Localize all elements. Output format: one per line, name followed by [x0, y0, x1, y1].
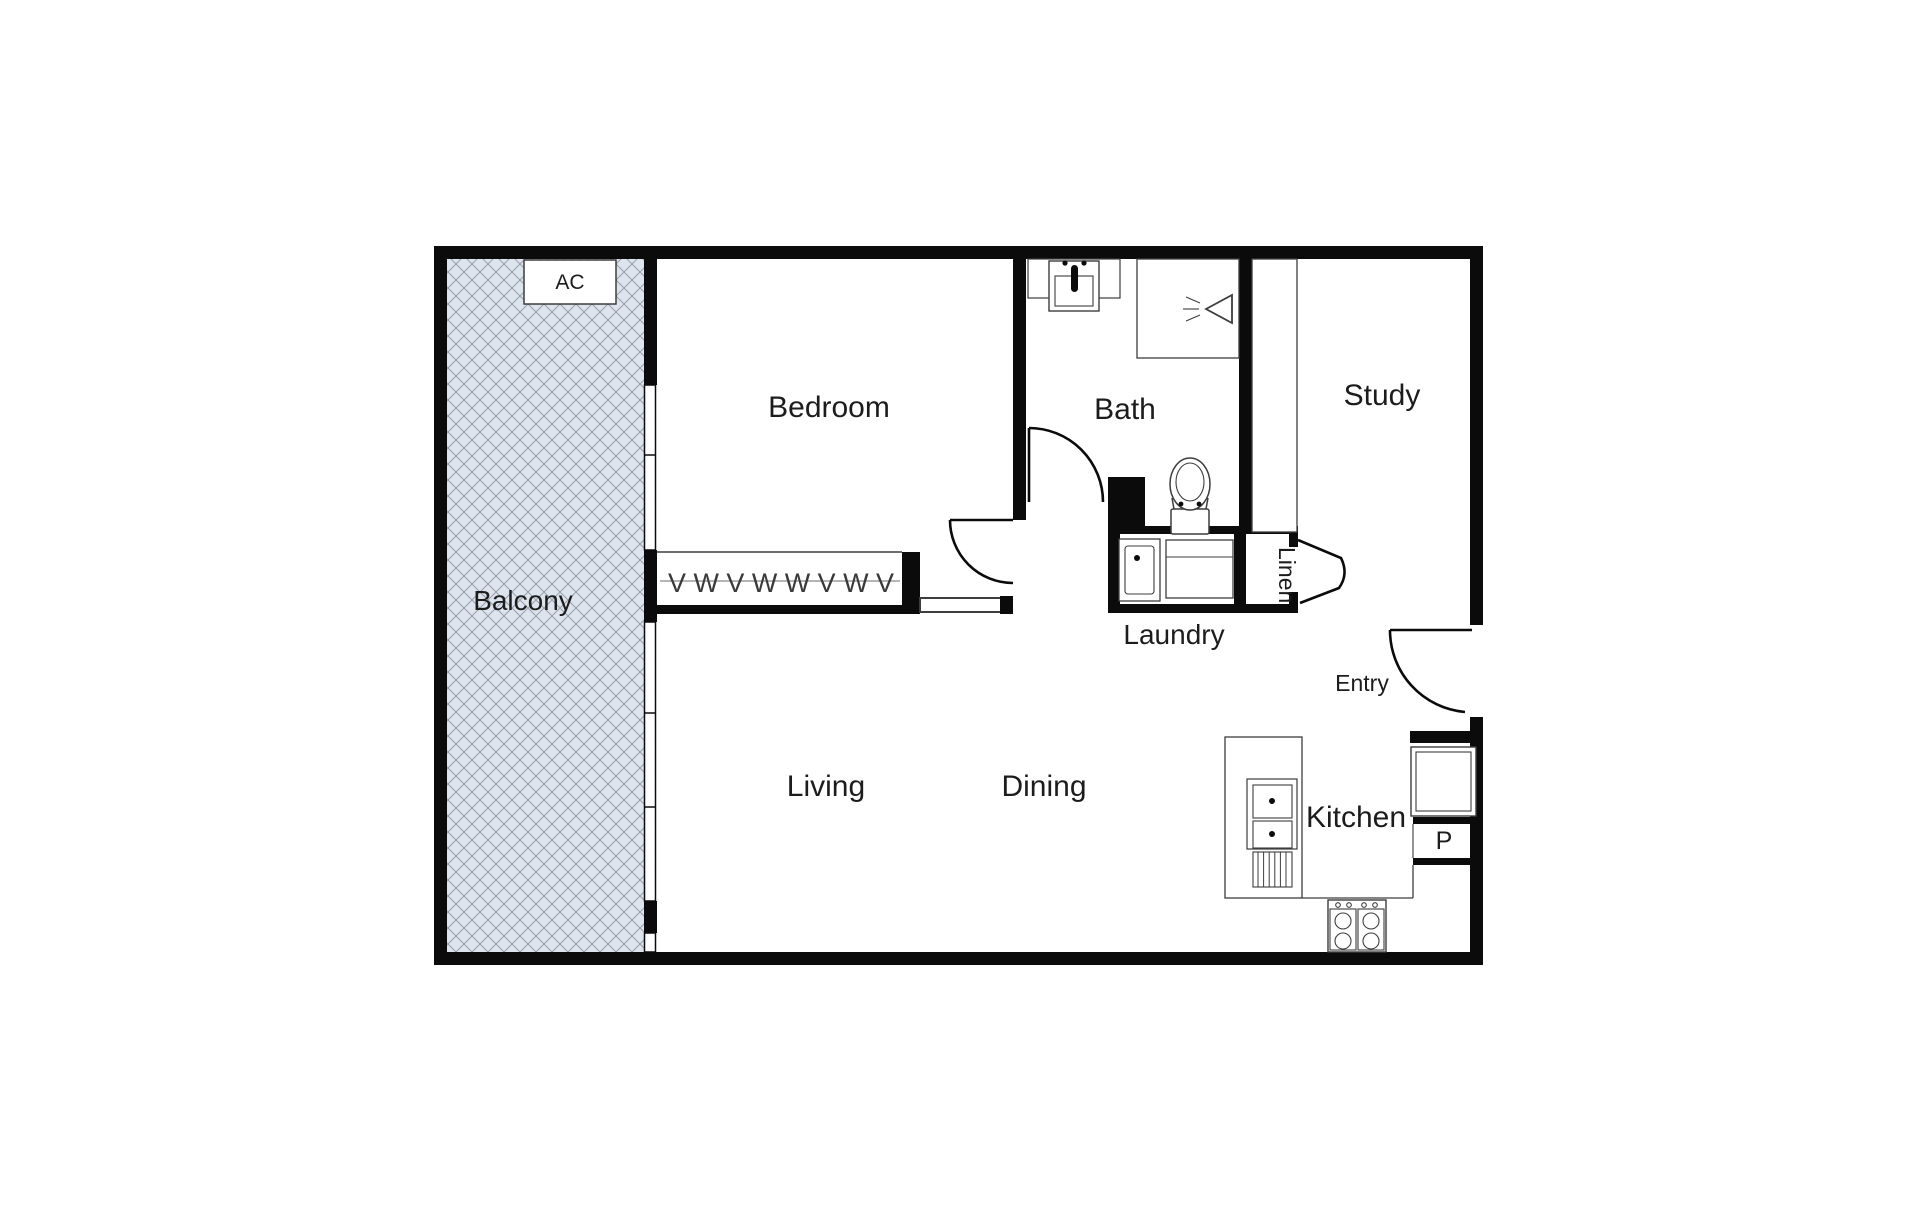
shower-head-icon	[1206, 295, 1232, 323]
pantry-wall-top	[1413, 817, 1473, 824]
faucet-icon	[1071, 265, 1078, 292]
laundry-label: Laundry	[1123, 619, 1224, 650]
bath-sink	[1028, 259, 1120, 311]
fridge	[1411, 747, 1476, 816]
outer-wall-right-upper	[1470, 246, 1483, 625]
dining-label: Dining	[1001, 770, 1086, 803]
balcony-divider	[644, 259, 657, 952]
floor-plan: V W V W W V W V	[0, 0, 1919, 1215]
laundry-linen-divider	[1234, 526, 1246, 613]
entry-label: Entry	[1335, 670, 1389, 696]
bedroom-door	[950, 520, 1013, 583]
balcony-window-lower	[645, 622, 656, 901]
wardrobe-hanging-symbol: V W V W W V W V	[668, 568, 894, 598]
balcony-window-bottom	[645, 933, 656, 952]
outer-wall-left	[434, 246, 447, 965]
laundry-bottom-wall	[1108, 604, 1298, 613]
wardrobe-end-block	[902, 552, 920, 614]
balcony-label: Balcony	[473, 585, 573, 616]
balcony-window-upper	[645, 385, 656, 550]
bath-door-block	[1108, 477, 1145, 532]
floor-plan-page: V W V W W V W V	[0, 0, 1919, 1215]
bedroom-slider-wall	[920, 598, 1012, 612]
entry-door	[1390, 630, 1472, 712]
pantry-wall-bottom	[1413, 858, 1473, 865]
laundry-fixtures	[1119, 539, 1233, 601]
outer-wall-top	[434, 246, 1483, 259]
study-label: Study	[1344, 379, 1421, 412]
laundry-tub	[1119, 539, 1160, 601]
bath-label: Bath	[1094, 393, 1156, 426]
linen-door	[1298, 540, 1345, 603]
bedroom-label: Bedroom	[768, 391, 890, 424]
bedroom-slider-cap	[1000, 596, 1013, 614]
wardrobe: V W V W W V W V	[657, 552, 902, 598]
washing-machine	[1166, 540, 1233, 598]
outer-wall-bottom	[434, 952, 1483, 965]
stove-cooktop	[1328, 900, 1386, 952]
bath-door	[1029, 428, 1103, 502]
bedroom-lower-wall	[657, 605, 920, 614]
shower	[1137, 259, 1239, 358]
bedroom-bath-wall	[1013, 259, 1026, 520]
bath-study-wall	[1239, 259, 1252, 532]
toilet-icon	[1170, 458, 1210, 534]
kitchen-label: Kitchen	[1306, 801, 1406, 834]
study-cupboard-strip	[1252, 259, 1297, 532]
laundry-left-wall	[1108, 526, 1120, 613]
pantry-label: P	[1436, 827, 1453, 855]
living-label: Living	[787, 770, 865, 803]
kitchen-top-wall	[1410, 731, 1483, 743]
ac-label: AC	[555, 271, 584, 294]
linen-label: Linen	[1274, 547, 1300, 603]
